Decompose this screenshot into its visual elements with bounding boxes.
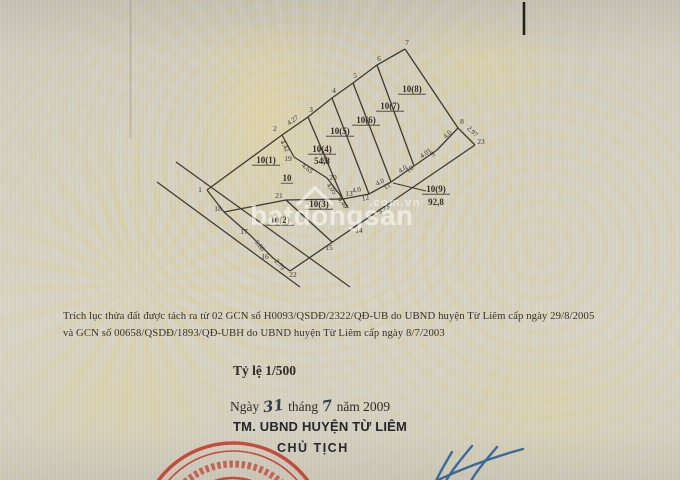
handwritten-signature xyxy=(436,446,523,480)
scanned-land-extract-document: 12345678910111213141516171819202122234.2… xyxy=(0,0,680,480)
official-red-seal xyxy=(140,443,326,480)
seal-signature-layer xyxy=(0,0,680,480)
